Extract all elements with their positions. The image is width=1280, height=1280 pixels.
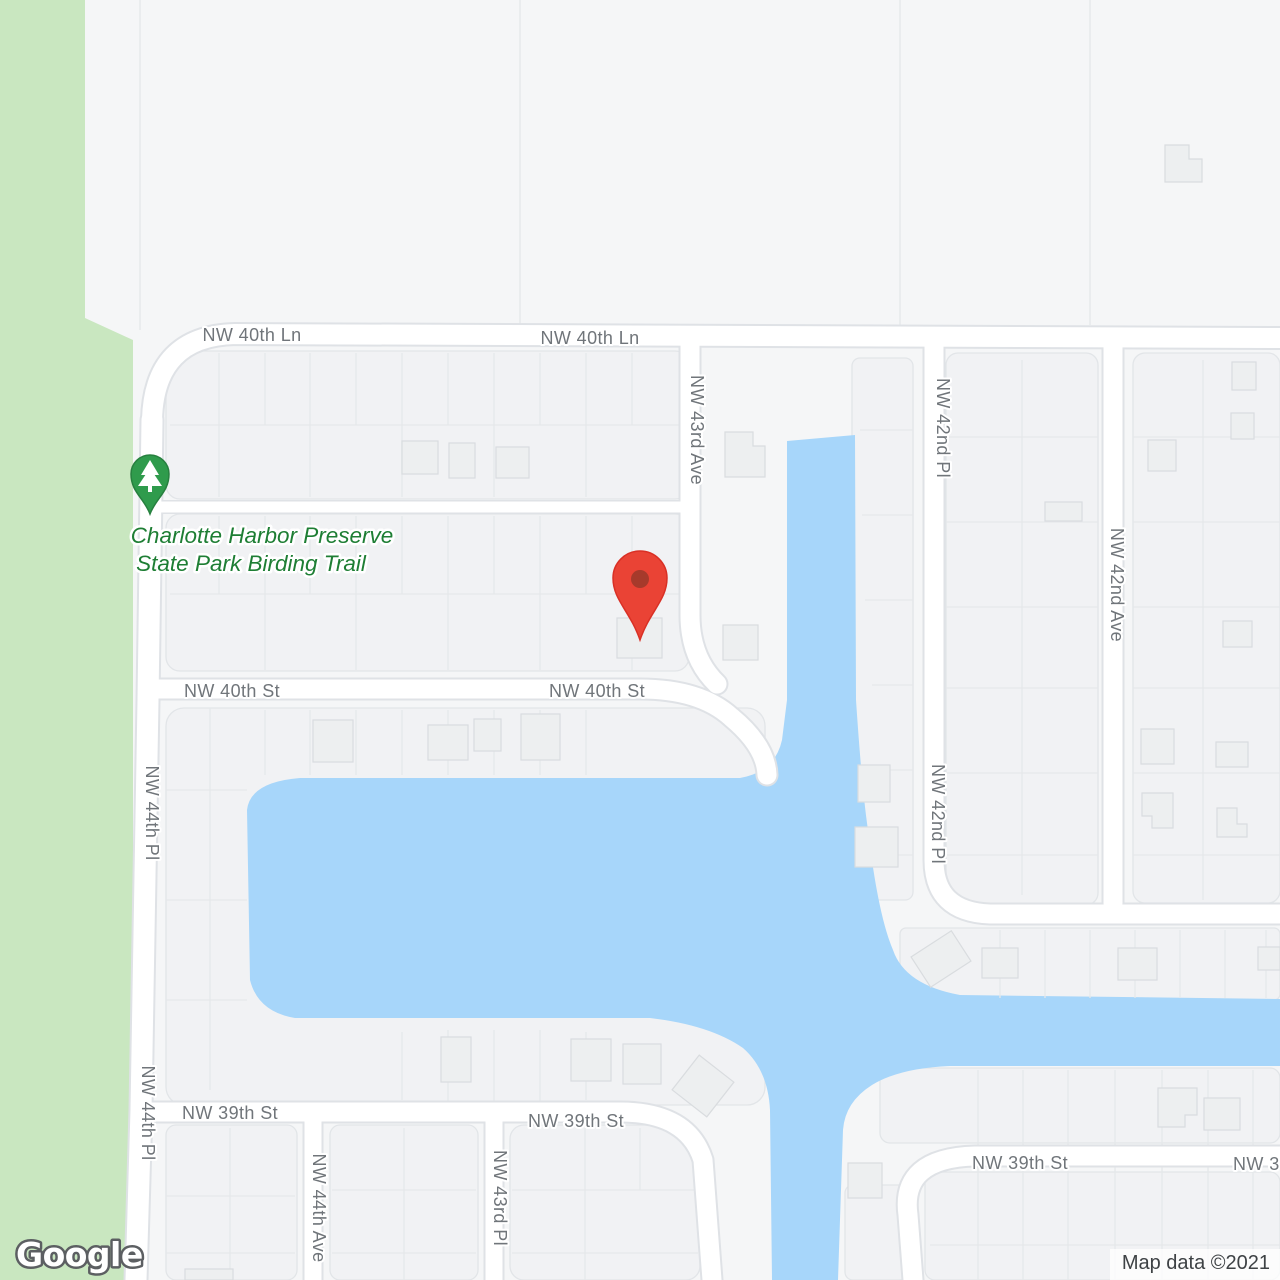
street-label-nw-44th-pl-south: NW 44th Pl — [138, 1065, 158, 1160]
location-pin-dot — [631, 570, 649, 588]
svg-text:State Park Birding Trail: State Park Birding Trail — [136, 551, 367, 576]
street-label-nw-39th-st-partial: NW 3 — [1233, 1154, 1280, 1174]
street-label-nw-39th-st-east: NW 39th St — [972, 1153, 1068, 1173]
street-label-nw-39th-st-center: NW 39th St — [528, 1111, 624, 1131]
street-label-nw-43rd-pl: NW 43rd Pl — [490, 1150, 510, 1246]
street-label-nw-39th-st-west: NW 39th St — [182, 1103, 278, 1123]
street-label-nw-42nd-pl-south: NW 42nd Pl — [928, 764, 948, 864]
street-label-nw-40th-ln-center: NW 40th Ln — [540, 328, 639, 348]
street-label-nw-44th-ave: NW 44th Ave — [309, 1153, 329, 1262]
google-logo[interactable]: Google — [16, 1235, 143, 1274]
street-label-nw-43rd-ave: NW 43rd Ave — [687, 375, 707, 485]
street-label-nw-40th-st-west: NW 40th St — [184, 681, 280, 701]
svg-text:Charlotte Harbor Preserve: Charlotte Harbor Preserve — [131, 523, 394, 548]
map-attribution: Map data ©2021 — [1110, 1249, 1280, 1280]
street-label-nw-40th-st-center: NW 40th St — [549, 681, 645, 701]
map-canvas[interactable]: NW 40th Ln NW 40th Ln NW 43rd Ave NW 42n… — [0, 0, 1280, 1280]
street-label-nw-40th-ln-west: NW 40th Ln — [202, 325, 301, 345]
street-label-nw-42nd-pl-north: NW 42nd Pl — [933, 378, 953, 478]
street-label-nw-44th-pl-north: NW 44th Pl — [142, 765, 162, 860]
street-label-nw-42nd-ave: NW 42nd Ave — [1107, 528, 1127, 642]
